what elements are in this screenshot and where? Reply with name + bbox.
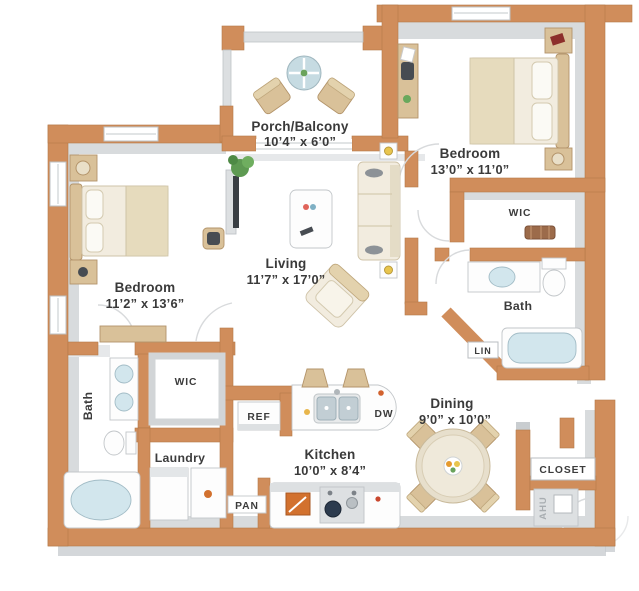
- bar-stool: [343, 369, 369, 387]
- living-furniture: [226, 143, 400, 330]
- porch-dims: 10’4” x 6’0”: [264, 134, 336, 149]
- pillow: [532, 103, 552, 140]
- dresser: [100, 326, 166, 342]
- dining-furniture: [406, 419, 500, 513]
- dining-label: Dining: [430, 396, 473, 411]
- toilet: [104, 431, 124, 455]
- bench: [525, 226, 555, 239]
- toilet-tank: [126, 432, 136, 454]
- floor-plan: Porch/Balcony 10’4” x 6’0” Bedroom 13’0”…: [0, 0, 639, 591]
- wall-bedroom-right-left: [382, 5, 398, 138]
- dining-dims: 9’0” x 10’0”: [419, 412, 491, 427]
- ref-label: REF: [247, 412, 270, 423]
- wic-left-furniture: [152, 356, 222, 422]
- wic-right-label: WIC: [509, 208, 532, 219]
- pillow: [532, 62, 552, 99]
- wall-closet-left: [516, 430, 530, 510]
- bath-right-label: Bath: [504, 299, 533, 313]
- bedroom-left-label: Bedroom: [115, 280, 176, 295]
- bar-stool: [302, 369, 328, 387]
- sink: [115, 393, 133, 411]
- wall-bottom: [48, 528, 615, 546]
- bed-headboard: [70, 184, 82, 260]
- wic-shelves: [152, 356, 222, 422]
- laundry-furniture: [150, 468, 226, 520]
- toilet-tank: [542, 258, 566, 269]
- pillow: [86, 223, 103, 252]
- bedroom-right-label: Bedroom: [440, 146, 501, 161]
- desk-chair: [401, 62, 414, 80]
- porch-furniture: [252, 56, 355, 115]
- sofa-pillow: [365, 169, 383, 178]
- bedroom-right-dims: 13’0” x 11’0”: [431, 162, 510, 177]
- porch-chair: [316, 77, 355, 116]
- wall-bath-right-top: [470, 248, 585, 261]
- bedroom-left-dims: 11’2” x 13’6”: [106, 296, 185, 311]
- bath-left-label: Bath: [81, 392, 95, 421]
- linen-label: LIN: [474, 346, 491, 356]
- bedroom-left-furniture: [70, 155, 224, 342]
- living-dims: 11’7” x 17’0”: [247, 272, 326, 287]
- pot: [325, 501, 341, 517]
- porch-rail: [244, 32, 363, 42]
- sofa-pillow: [365, 246, 383, 255]
- wall-right-lower: [595, 400, 615, 546]
- wall-wic-right-top: [450, 178, 605, 192]
- porch-chair: [252, 77, 291, 116]
- door-wic-right: [418, 210, 449, 241]
- faucet: [334, 389, 340, 395]
- pan-label: PAN: [235, 501, 259, 512]
- pillow: [86, 190, 103, 219]
- wall-diagonal: [446, 312, 502, 369]
- porch-label: Porch/Balcony: [251, 119, 348, 134]
- coffee-table: [290, 190, 332, 248]
- closet-label: CLOSET: [539, 465, 586, 476]
- wall-right-upper: [585, 5, 605, 380]
- sink: [489, 267, 515, 287]
- wic-right-furniture: [525, 226, 555, 239]
- wic-left-label: WIC: [175, 377, 198, 388]
- toilet: [543, 270, 565, 296]
- sink: [115, 365, 133, 383]
- tv: [233, 176, 239, 228]
- kitchen-label: Kitchen: [305, 447, 356, 462]
- floor-plan-page: Porch/Balcony 10’4” x 6’0” Bedroom 13’0”…: [0, 0, 639, 591]
- dw-label: DW: [375, 409, 394, 420]
- laundry-label: Laundry: [155, 451, 206, 465]
- kitchen-dims: 10’0” x 8’4”: [294, 463, 366, 478]
- ahu-label: AHU: [538, 496, 549, 520]
- living-label: Living: [266, 256, 307, 271]
